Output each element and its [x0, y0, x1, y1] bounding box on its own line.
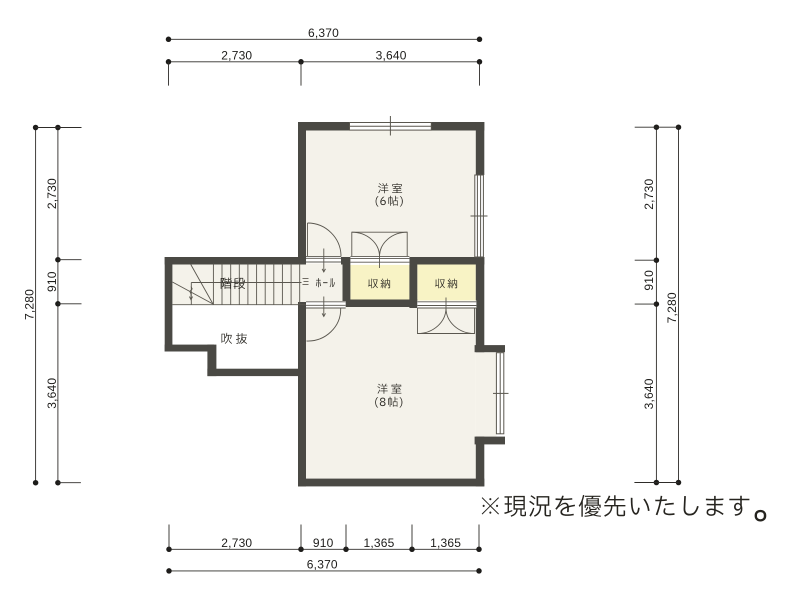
svg-text:1,365: 1,365	[363, 536, 394, 550]
svg-text:910: 910	[45, 271, 59, 292]
svg-text:1,365: 1,365	[430, 536, 461, 550]
svg-text:6,370: 6,370	[308, 26, 339, 40]
svg-text:3,640: 3,640	[642, 378, 656, 409]
svg-text:7,280: 7,280	[665, 292, 679, 323]
svg-text:6,370: 6,370	[307, 558, 338, 572]
svg-text:2,730: 2,730	[642, 179, 656, 210]
svg-text:2,730: 2,730	[221, 536, 252, 550]
svg-text:3,640: 3,640	[376, 49, 407, 63]
svg-text:3,640: 3,640	[45, 378, 59, 409]
svg-text:7,280: 7,280	[22, 289, 36, 320]
svg-text:2,730: 2,730	[45, 178, 59, 209]
svg-text:2,730: 2,730	[221, 49, 252, 63]
svg-text:910: 910	[642, 270, 656, 291]
svg-text:910: 910	[313, 536, 334, 550]
